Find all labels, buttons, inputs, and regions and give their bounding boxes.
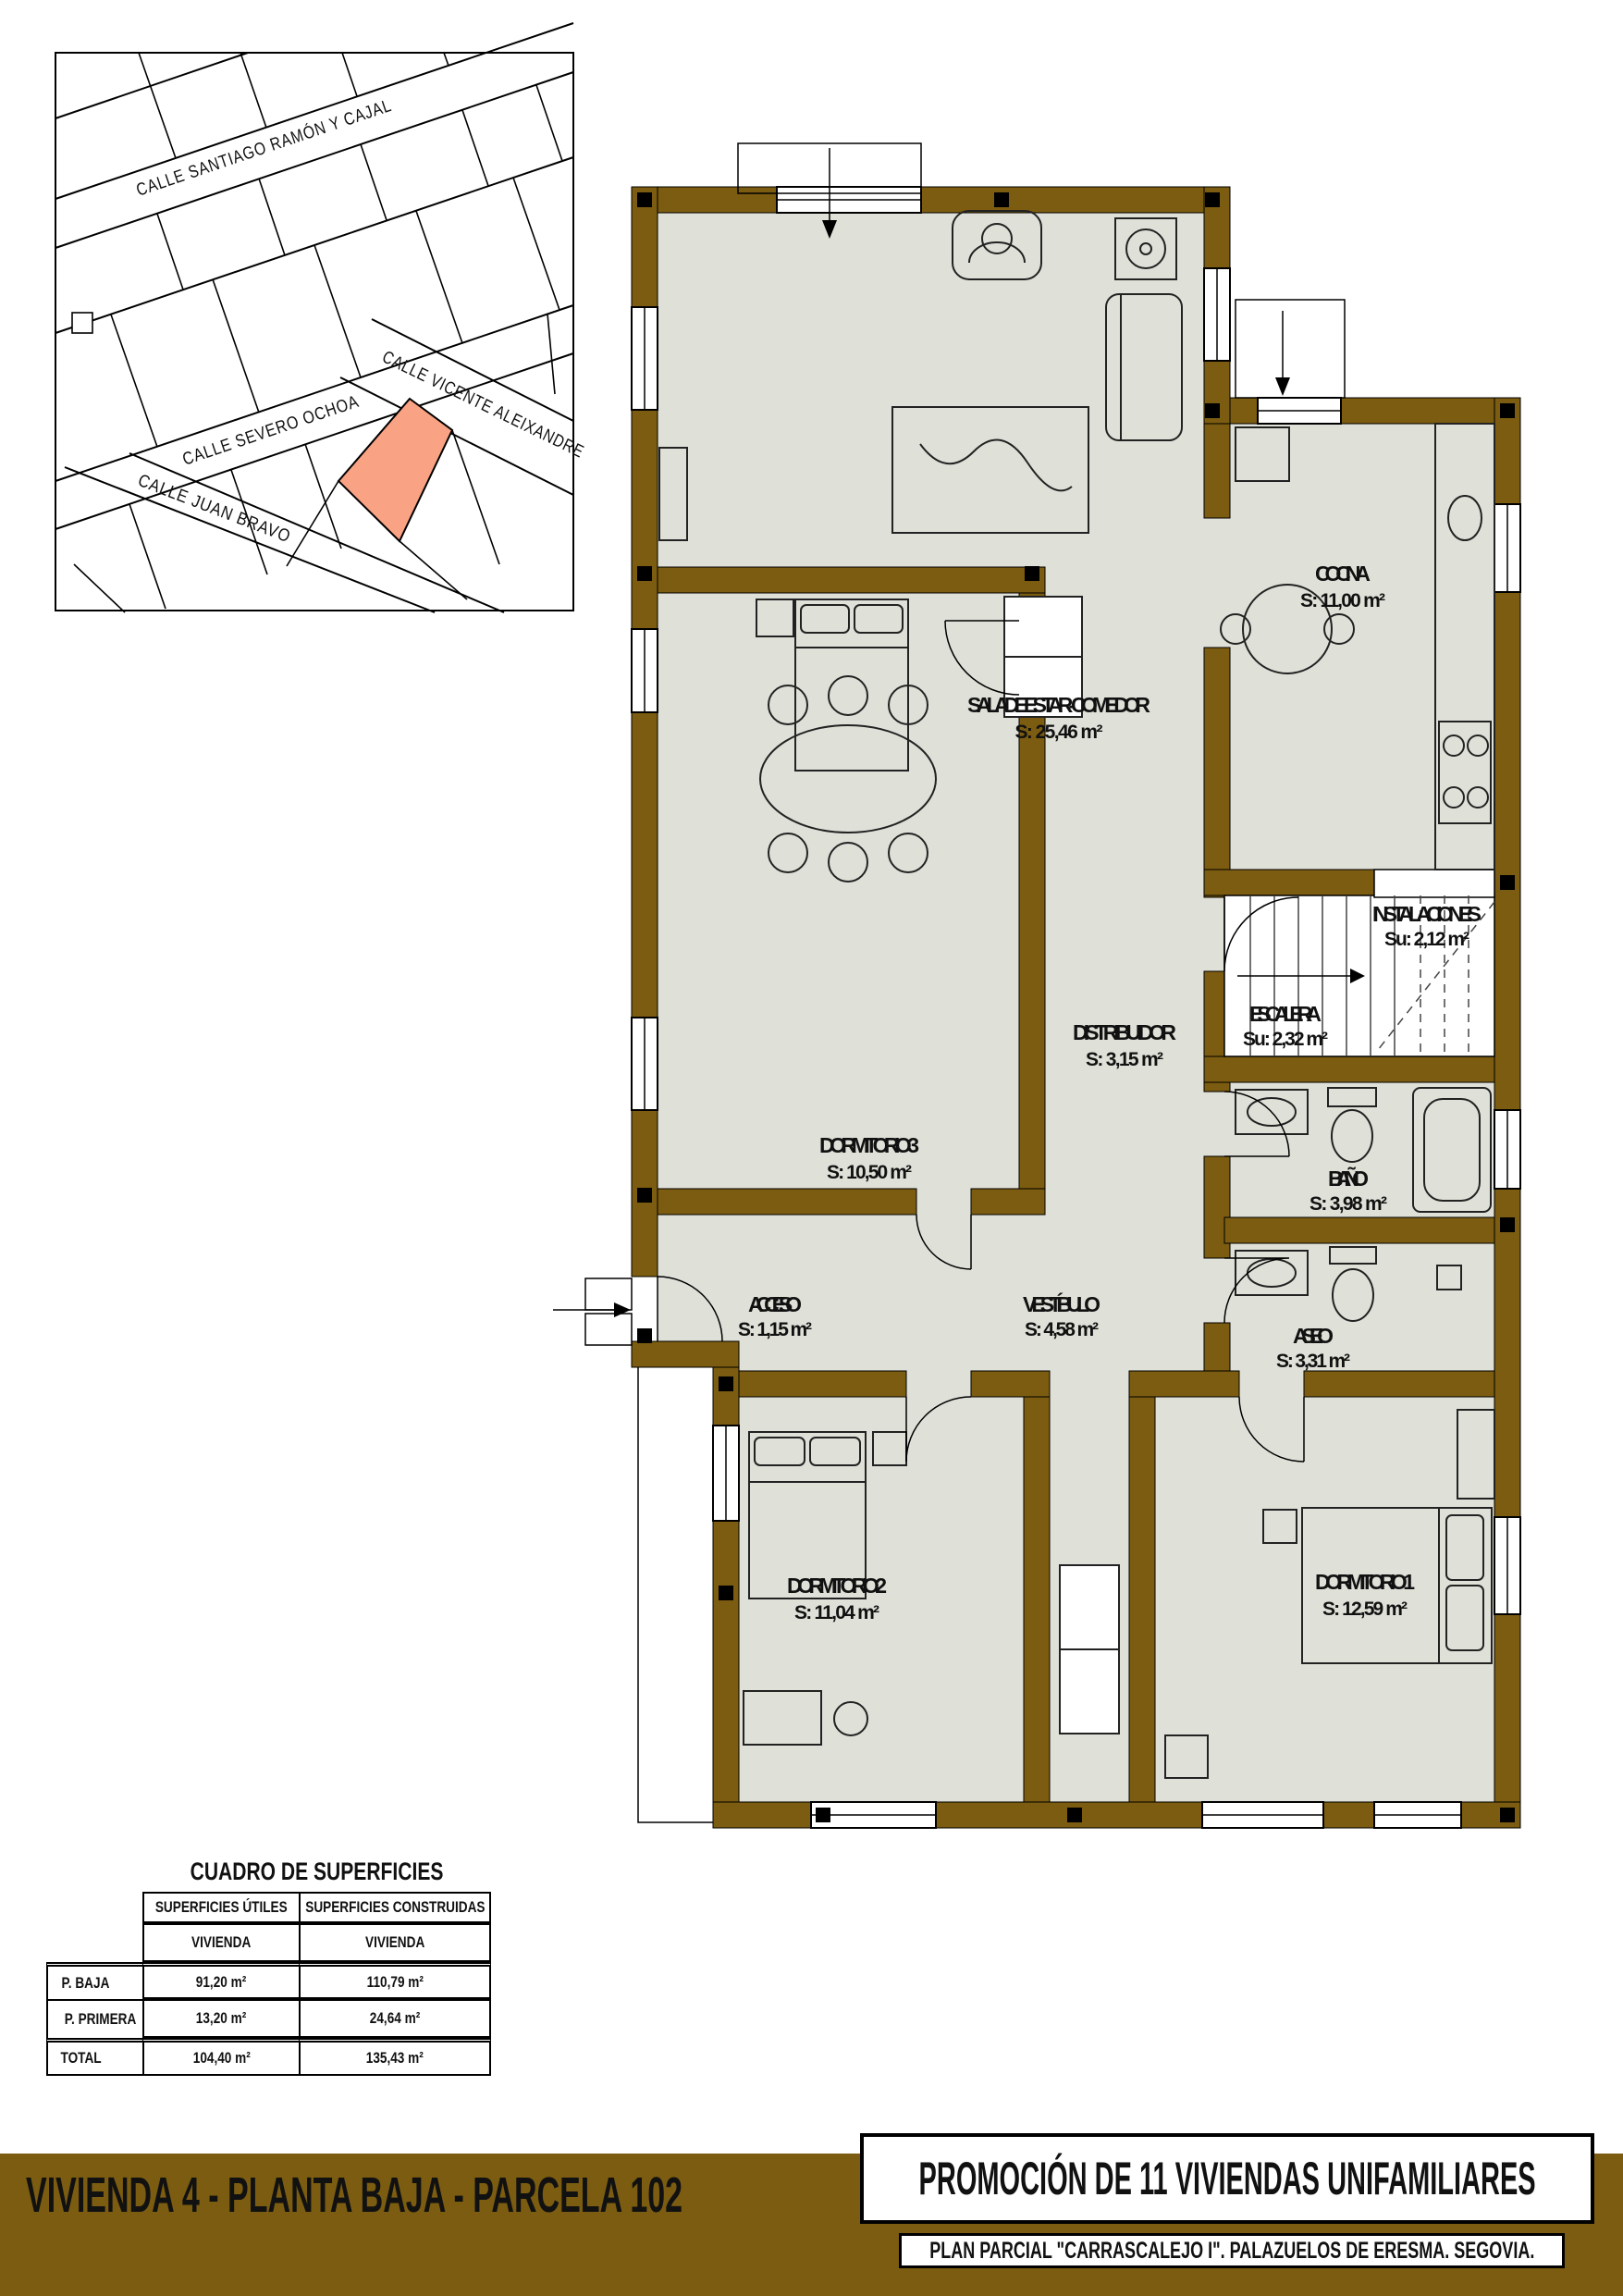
- cell-total-utiles: 104,40 m²: [142, 2038, 299, 2076]
- svg-text:DORMITORIO 1: DORMITORIO 1: [1315, 1570, 1415, 1594]
- svg-text:S: 25,46 m²: S: 25,46 m²: [1015, 722, 1103, 743]
- svg-text:S: 1,15 m²: S: 1,15 m²: [738, 1319, 812, 1340]
- svg-text:SALA DE ESTAR - COMEDOR: SALA DE ESTAR - COMEDOR: [967, 693, 1150, 717]
- svg-text:VESTÍBULO: VESTÍBULO: [1023, 1291, 1100, 1316]
- svg-text:Su: 2,12 m²: Su: 2,12 m²: [1384, 929, 1469, 950]
- sub-header-vivienda-1: VIVIENDA: [142, 1923, 299, 1962]
- col-header-construidas: SUPERFICIES CONSTRUIDAS: [299, 1892, 491, 1923]
- cell-total-construidas: 135,43 m²: [299, 2038, 491, 2076]
- row-label-p-baja: P. BAJA: [46, 1962, 142, 1999]
- surface-table: CUADRO DE SUPERFICIES SUPERFICIES ÚTILES…: [46, 1858, 491, 2076]
- svg-text:S: 3,31 m²: S: 3,31 m²: [1276, 1351, 1350, 1372]
- svg-text:COCINA: COCINA: [1315, 562, 1371, 586]
- entry-step-2: [585, 1314, 632, 1345]
- col-header-utiles: SUPERFICIES ÚTILES: [142, 1892, 299, 1923]
- svg-text:DORMITORIO 3: DORMITORIO 3: [819, 1133, 919, 1157]
- svg-text:S: 11,04 m²: S: 11,04 m²: [794, 1602, 879, 1623]
- promotion-subtitle-box: PLAN PARCIAL "CARRASCALEJO I". PALAZUELO…: [899, 2233, 1565, 2268]
- cell-baja-utiles: 91,20 m²: [142, 1962, 299, 1999]
- cell-primera-construidas: 24,64 m²: [299, 1999, 491, 2038]
- svg-text:INSTALACIONES: INSTALACIONES: [1372, 902, 1482, 926]
- promotion-title-box: PROMOCIÓN DE 11 VIVIENDAS UNIFAMILIARES: [860, 2133, 1594, 2224]
- paving-line: [638, 1367, 713, 1822]
- floor-plan: SALA DE ESTAR - COMEDOR S: 25,46 m² COCI…: [553, 143, 1520, 1828]
- access-arrow-icon: [614, 1302, 631, 1317]
- room-label-vestibulo: VESTÍBULO S: 4,58 m²: [1023, 1291, 1100, 1340]
- kitchen-canopy: [1236, 300, 1345, 398]
- svg-text:BAÑO: BAÑO: [1328, 1166, 1369, 1191]
- row-label-total: TOTAL: [46, 2038, 142, 2076]
- svg-text:ESCALERA: ESCALERA: [1249, 1002, 1322, 1026]
- svg-text:DORMITORIO 2: DORMITORIO 2: [787, 1574, 887, 1598]
- svg-text:S: 3,15 m²: S: 3,15 m²: [1086, 1049, 1163, 1070]
- svg-text:ACCESO: ACCESO: [748, 1292, 802, 1316]
- sub-header-vivienda-2: VIVIENDA: [299, 1923, 491, 1962]
- entry-step-1: [585, 1278, 632, 1310]
- svg-text:S: 11,00 m²: S: 11,00 m²: [1300, 590, 1385, 611]
- table-empty-cell: [46, 1923, 142, 1962]
- row-label-p-primera: P. PRIMERA: [46, 1999, 142, 2038]
- cell-primera-utiles: 13,20 m²: [142, 1999, 299, 2038]
- svg-text:S: 4,58 m²: S: 4,58 m²: [1025, 1319, 1099, 1340]
- location-map: CALLE SANTIAGO RAMÓN Y CAJAL CALLE SEVER…: [55, 23, 587, 612]
- svg-text:ASEO: ASEO: [1293, 1324, 1334, 1348]
- drawing-sheet: CALLE SANTIAGO RAMÓN Y CAJAL CALLE SEVER…: [0, 0, 1623, 2296]
- kitchen-arrow-icon: [1275, 377, 1290, 396]
- surface-table-title: CUADRO DE SUPERFICIES: [142, 1858, 491, 1886]
- svg-text:Su: 2,32 m²: Su: 2,32 m²: [1243, 1029, 1328, 1050]
- cell-baja-construidas: 110,79 m²: [299, 1962, 491, 1999]
- table-corner-cell: [46, 1892, 142, 1923]
- svg-text:DISTRIBUIDOR: DISTRIBUIDOR: [1073, 1020, 1176, 1044]
- svg-text:S: 3,98 m²: S: 3,98 m²: [1309, 1193, 1387, 1215]
- svg-text:S: 10,50 m²: S: 10,50 m²: [827, 1162, 912, 1183]
- svg-text:S: 12,59 m²: S: 12,59 m²: [1322, 1599, 1408, 1620]
